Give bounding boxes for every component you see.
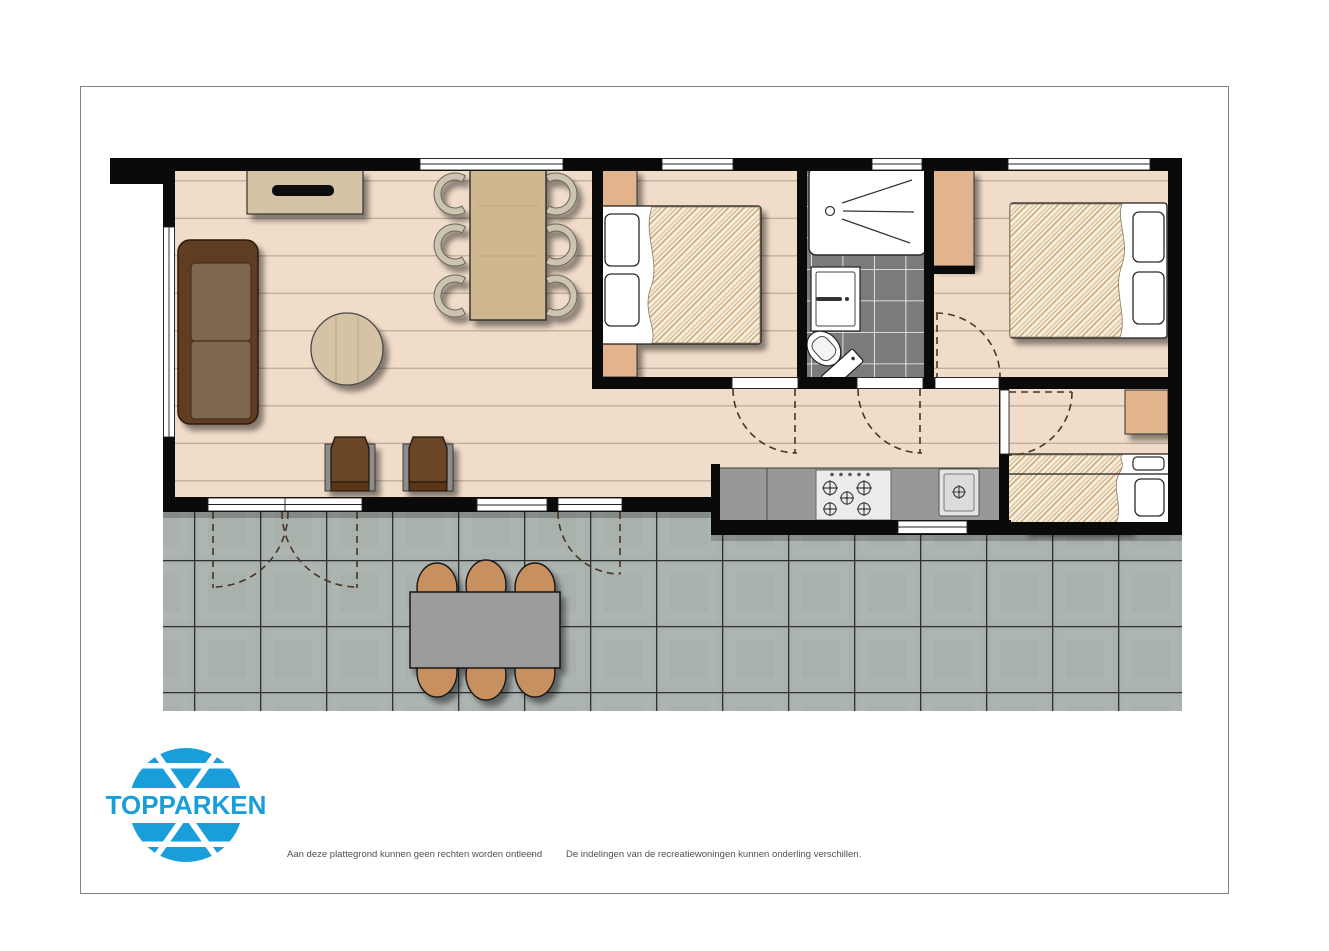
kitchen — [719, 468, 1000, 521]
hob — [816, 470, 891, 520]
door-bedroom2 — [935, 378, 999, 389]
sofa — [178, 240, 258, 424]
kitchen-sink — [939, 469, 979, 516]
terrace-wall-shadow — [163, 512, 720, 518]
terrace-table — [410, 592, 560, 668]
window-top-bedroom2 — [1008, 159, 1150, 171]
disclaimer-separator: - — [531, 849, 534, 860]
coffee-table — [311, 313, 383, 385]
page: TOPPARKEN Aan deze plattegrond kunnen ge… — [0, 0, 1329, 951]
door-bathroom — [857, 378, 923, 389]
window-top-bathroom — [872, 159, 922, 171]
tv-sideboard — [247, 170, 363, 214]
french-doors-terrace — [208, 498, 362, 511]
wardrobe — [933, 170, 974, 266]
shower — [809, 167, 926, 255]
wardrobe — [1125, 390, 1168, 434]
window-top-bedroom1 — [662, 159, 733, 171]
double-bed-2 — [1010, 203, 1167, 338]
window-bottom-kitchen — [898, 521, 967, 534]
bunk-bed — [1008, 454, 1169, 524]
armchair-2 — [403, 437, 453, 491]
door-terrace-2 — [558, 498, 622, 511]
disclaimer-right: De indelingen van de recreatiewoningen k… — [566, 849, 861, 860]
armchair-1 — [325, 437, 375, 491]
washbasin — [811, 267, 860, 331]
door-bedroom3 — [1000, 390, 1009, 454]
bedside-cabinet — [598, 169, 637, 208]
bedside-cabinet — [598, 341, 637, 377]
tv — [272, 185, 334, 196]
window-top-living — [420, 159, 563, 171]
dining-table — [470, 168, 546, 320]
terrace-wall-shadow-2 — [711, 535, 1182, 541]
topparken-logo-text: TOPPARKEN — [103, 788, 269, 823]
disclaimer-left: Aan deze plattegrond kunnen geen rechten… — [287, 849, 542, 860]
double-bed-1 — [599, 206, 761, 344]
door-bedroom1 — [732, 378, 798, 389]
topparken-logo: TOPPARKEN — [103, 744, 269, 868]
terrace-set — [410, 560, 560, 700]
window-left-living — [164, 227, 175, 437]
window-bottom-living — [477, 499, 547, 512]
